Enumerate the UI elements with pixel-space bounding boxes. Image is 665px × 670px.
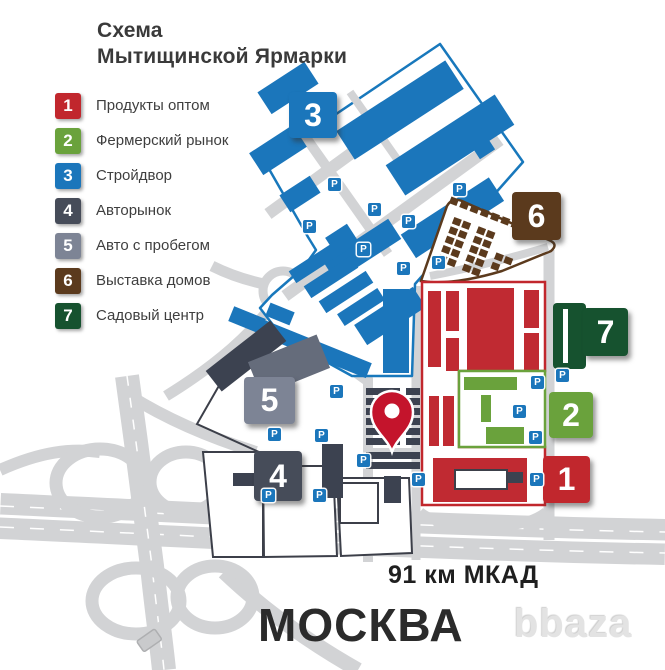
legend-item-stroydvor: 3 Стройдвор xyxy=(55,158,228,193)
parking-icon: P xyxy=(315,429,328,442)
legend-item-label: Фермерский рынок xyxy=(96,132,228,149)
parking-icon: P xyxy=(513,405,526,418)
legend-item-avto-s-probegom: 5 Авто с пробегом xyxy=(55,228,228,263)
map-zone-badge-5: 5 xyxy=(244,377,295,424)
legend-number-badge: 6 xyxy=(55,268,81,294)
parking-icon: P xyxy=(531,376,544,389)
fair-map-page: Схема Мытищинской Ярмарки 1 Продукты опт… xyxy=(0,0,665,670)
zone-7-building xyxy=(553,303,586,369)
parking-icon: P xyxy=(303,220,316,233)
legend: 1 Продукты оптом 2 Фермерский рынок 3 Ст… xyxy=(55,88,228,333)
watermark: bbaza xyxy=(514,602,632,647)
highway-label: 91 км МКАД xyxy=(388,561,539,590)
legend-item-label: Авторынок xyxy=(96,202,171,219)
legend-item-label: Выставка домов xyxy=(96,272,210,289)
map-zone-badge-1: 1 xyxy=(543,456,590,503)
legend-item-label: Садовый центр xyxy=(96,307,204,324)
legend-item-produkty: 1 Продукты оптом xyxy=(55,88,228,123)
legend-item-label: Стройдвор xyxy=(96,167,172,184)
parking-icon: P xyxy=(330,385,343,398)
parking-icon: P xyxy=(357,243,370,256)
city-label: МОСКВА xyxy=(258,598,464,652)
parking-icon: P xyxy=(313,489,326,502)
legend-item-sadovy-center: 7 Садовый центр xyxy=(55,298,228,333)
legend-number-badge: 2 xyxy=(55,128,81,154)
parking-icon: P xyxy=(357,454,370,467)
parking-icon: P xyxy=(262,489,275,502)
map-zone-badge-3: 3 xyxy=(289,92,337,138)
page-title: Схема Мытищинской Ярмарки xyxy=(97,18,347,70)
page-title-line2: Мытищинской Ярмарки xyxy=(97,44,347,70)
parking-icon: P xyxy=(453,183,466,196)
map-zone-badge-2: 2 xyxy=(549,392,593,438)
map-zone-badge-6: 6 xyxy=(512,192,561,240)
legend-number-badge: 1 xyxy=(55,93,81,119)
parking-icon: P xyxy=(556,369,569,382)
parking-icon: P xyxy=(328,178,341,191)
parking-icon: P xyxy=(530,473,543,486)
legend-number-badge: 5 xyxy=(55,233,81,259)
parking-icon: P xyxy=(529,431,542,444)
legend-number-badge: 3 xyxy=(55,163,81,189)
parking-icon: P xyxy=(268,428,281,441)
parking-icon: P xyxy=(432,256,445,269)
map-zone-badge-7: 7 xyxy=(583,308,628,356)
legend-number-badge: 7 xyxy=(55,303,81,329)
legend-item-vystavka-domov: 6 Выставка домов xyxy=(55,263,228,298)
page-title-line1: Схема xyxy=(97,18,347,44)
parking-icon: P xyxy=(368,203,381,216)
parking-icon: P xyxy=(412,473,425,486)
legend-item-label: Авто с пробегом xyxy=(96,237,210,254)
legend-item-avtorynok: 4 Авторынок xyxy=(55,193,228,228)
parking-icon: P xyxy=(402,215,415,228)
legend-number-badge: 4 xyxy=(55,198,81,224)
parking-icon: P xyxy=(397,262,410,275)
legend-item-label: Продукты оптом xyxy=(96,97,210,114)
legend-item-fermersky: 2 Фермерский рынок xyxy=(55,123,228,158)
